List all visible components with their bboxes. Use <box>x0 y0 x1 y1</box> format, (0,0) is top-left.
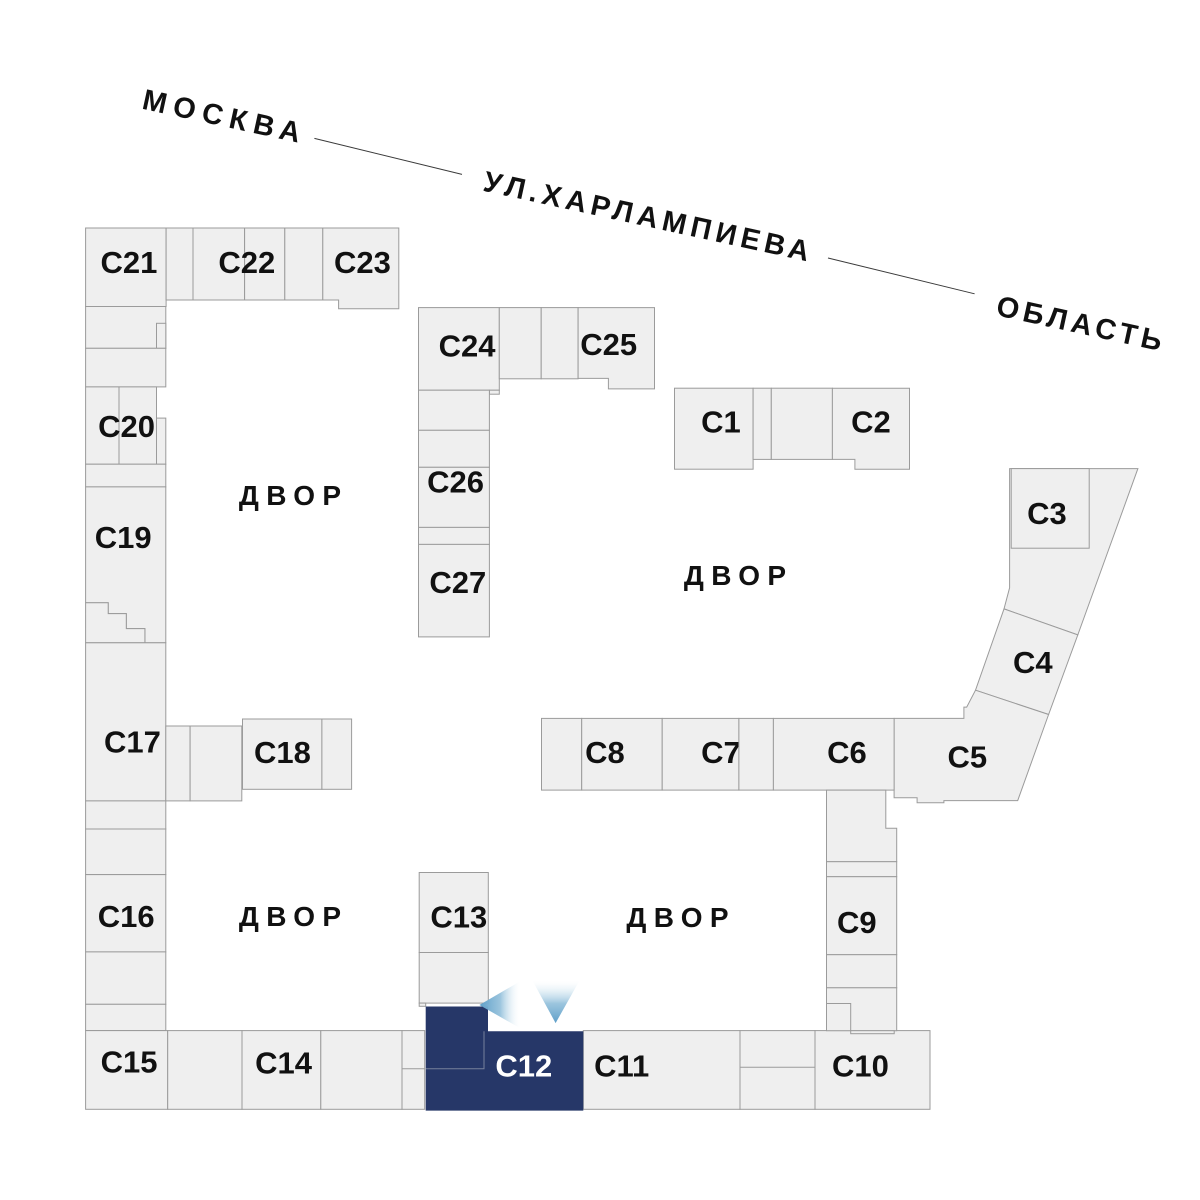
svg-text:С9: С9 <box>837 905 877 940</box>
svg-text:С8: С8 <box>585 735 625 770</box>
svg-text:С10: С10 <box>832 1048 889 1083</box>
svg-text:С14: С14 <box>255 1045 313 1080</box>
svg-text:С1: С1 <box>701 404 741 439</box>
svg-text:С27: С27 <box>429 565 486 600</box>
svg-text:С2: С2 <box>851 404 891 439</box>
svg-text:ДВОР: ДВОР <box>684 560 794 591</box>
svg-text:С25: С25 <box>580 327 637 362</box>
svg-text:ДВОР: ДВОР <box>626 902 736 933</box>
svg-text:С19: С19 <box>95 520 152 555</box>
svg-text:С21: С21 <box>100 245 157 280</box>
svg-text:С24: С24 <box>439 328 497 363</box>
svg-text:ДВОР: ДВОР <box>239 901 349 932</box>
svg-text:С12: С12 <box>495 1049 552 1084</box>
svg-text:С13: С13 <box>430 900 487 935</box>
svg-text:С22: С22 <box>218 245 275 280</box>
svg-text:С23: С23 <box>334 245 391 280</box>
svg-text:С4: С4 <box>1013 645 1053 680</box>
svg-text:С3: С3 <box>1027 496 1067 531</box>
svg-text:С6: С6 <box>827 735 867 770</box>
svg-text:С20: С20 <box>98 409 155 444</box>
svg-text:С18: С18 <box>254 735 311 770</box>
svg-text:С26: С26 <box>427 465 484 500</box>
svg-text:С16: С16 <box>98 899 155 934</box>
svg-text:С7: С7 <box>701 735 741 770</box>
svg-text:ДВОР: ДВОР <box>239 480 349 511</box>
svg-text:С17: С17 <box>104 725 161 760</box>
svg-text:С11: С11 <box>594 1048 649 1083</box>
svg-text:С15: С15 <box>101 1045 158 1080</box>
svg-text:С5: С5 <box>947 739 987 774</box>
